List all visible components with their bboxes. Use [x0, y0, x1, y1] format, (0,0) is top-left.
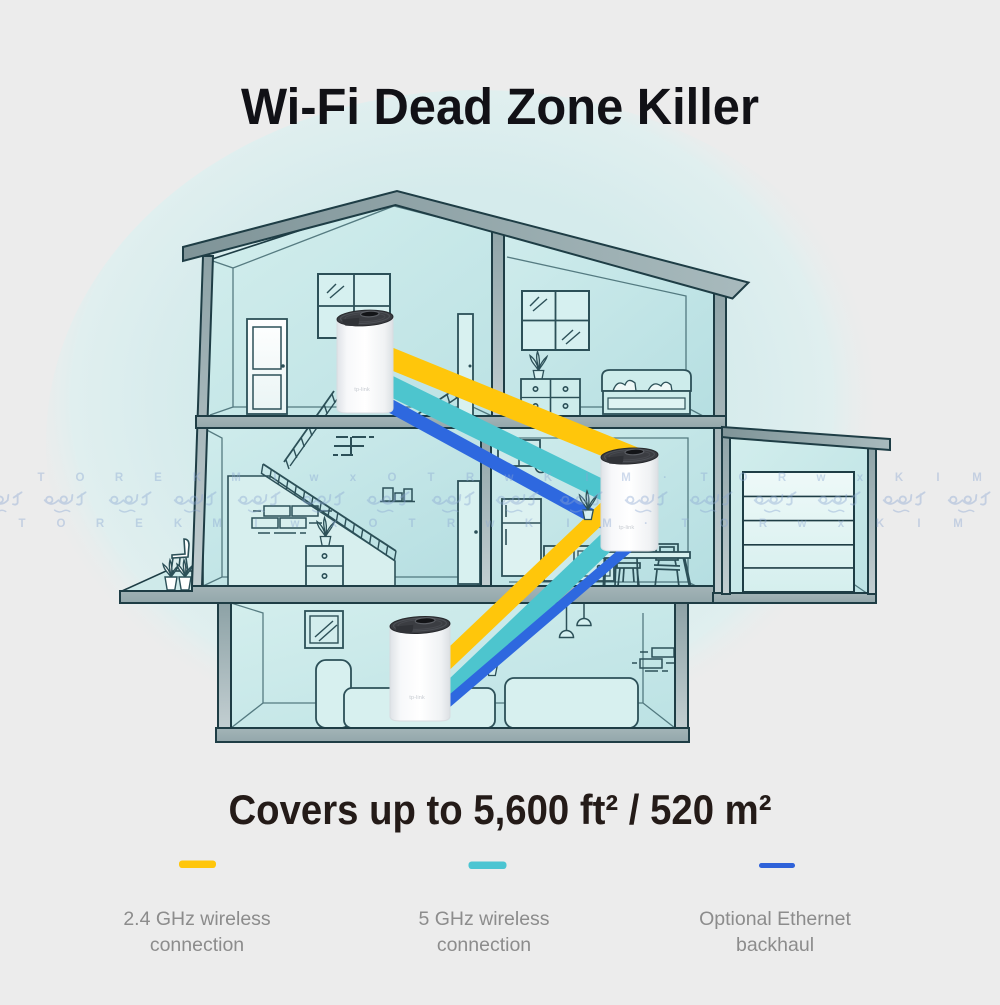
svg-text:w: w	[816, 472, 826, 484]
svg-text:w: w	[504, 472, 514, 484]
svg-text:T: T	[18, 518, 25, 530]
svg-text:R: R	[447, 518, 456, 530]
svg-text:T: T	[681, 518, 688, 530]
svg-text:O: O	[739, 472, 748, 484]
svg-text:O: O	[369, 518, 378, 530]
svg-text:K: K	[193, 472, 202, 484]
svg-text:K: K	[174, 518, 183, 530]
svg-text:M: M	[953, 518, 963, 530]
svg-text:M: M	[621, 472, 631, 484]
svg-text:R: R	[115, 472, 124, 484]
svg-text:K: K	[895, 472, 904, 484]
svg-text:I: I	[936, 472, 939, 484]
svg-text:Wi-Fi Dead Zone Killer: Wi-Fi Dead Zone Killer	[241, 78, 759, 135]
svg-text:K: K	[525, 518, 534, 530]
svg-text:x: x	[350, 472, 357, 484]
svg-text:·: ·	[663, 472, 667, 484]
svg-text:backhaul: backhaul	[736, 934, 814, 956]
svg-text:x: x	[857, 472, 864, 484]
svg-text:T: T	[37, 472, 44, 484]
svg-text:Covers up to 5,600 ft² / 520 m: Covers up to 5,600 ft² / 520 m²	[229, 786, 772, 833]
svg-text:tp-link: tp-link	[409, 695, 425, 701]
svg-text:E: E	[135, 518, 143, 530]
svg-text:x: x	[838, 518, 845, 530]
svg-text:w: w	[309, 472, 319, 484]
svg-text:w: w	[485, 518, 495, 530]
svg-text:E: E	[154, 472, 162, 484]
svg-text:T: T	[408, 518, 415, 530]
svg-text:2.4 GHz wireless: 2.4 GHz wireless	[123, 908, 271, 930]
svg-text:T: T	[427, 472, 434, 484]
svg-text:w: w	[290, 518, 300, 530]
svg-text:x: x	[331, 518, 338, 530]
svg-text:M: M	[212, 518, 222, 530]
svg-text:5 GHz wireless: 5 GHz wireless	[418, 908, 549, 930]
svg-text:T: T	[700, 472, 707, 484]
svg-text:O: O	[388, 472, 397, 484]
svg-text:I: I	[273, 472, 276, 484]
svg-text:M: M	[602, 518, 612, 530]
svg-text:I: I	[254, 518, 257, 530]
svg-text:O: O	[76, 472, 85, 484]
svg-text:R: R	[778, 472, 787, 484]
svg-text:O: O	[57, 518, 66, 530]
svg-text:connection: connection	[437, 934, 531, 956]
svg-text:·: ·	[644, 518, 648, 530]
svg-text:I: I	[566, 518, 569, 530]
svg-text:tp-link: tp-link	[354, 387, 370, 393]
svg-text:w: w	[797, 518, 807, 530]
svg-text:M: M	[231, 472, 241, 484]
svg-text:M: M	[972, 472, 982, 484]
svg-text:I: I	[917, 518, 920, 530]
svg-text:I: I	[585, 472, 588, 484]
svg-text:R: R	[466, 472, 475, 484]
svg-text:R: R	[759, 518, 768, 530]
svg-text:tp-link: tp-link	[619, 525, 635, 531]
svg-text:K: K	[544, 472, 553, 484]
svg-text:R: R	[96, 518, 105, 530]
svg-text:O: O	[720, 518, 729, 530]
svg-text:connection: connection	[150, 934, 244, 956]
svg-text:K: K	[876, 518, 885, 530]
svg-text:Optional Ethernet: Optional Ethernet	[699, 908, 851, 930]
